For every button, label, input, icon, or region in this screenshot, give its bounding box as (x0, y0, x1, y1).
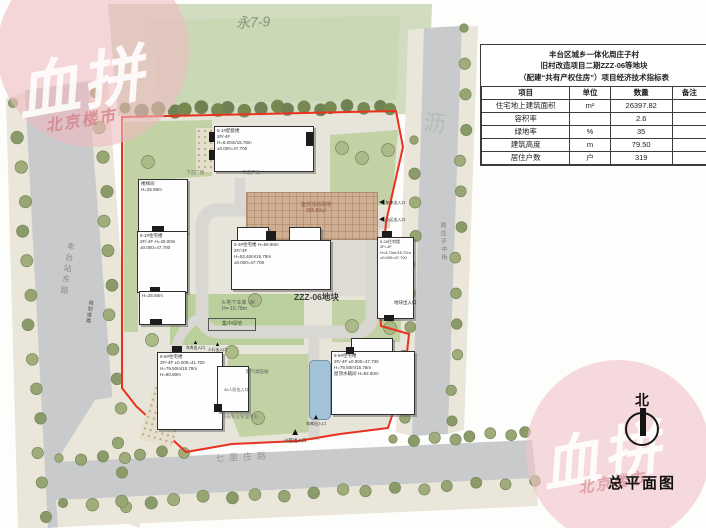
tree-icon (168, 493, 180, 505)
stair-core-block (346, 347, 354, 354)
lawn-west-strip (124, 180, 138, 332)
building-west-low: H=25.60m (139, 291, 186, 325)
tree-icon (471, 477, 482, 488)
table-cell: % (570, 125, 610, 138)
table-cell: 319 (610, 151, 672, 164)
north-label: 北 (602, 390, 682, 410)
north-arrow: 北 总平面图 (602, 390, 682, 493)
tree-icon (55, 454, 64, 463)
table-cell (672, 99, 706, 112)
tree-icon (195, 101, 208, 114)
tree-icon (93, 121, 106, 134)
tree-icon (337, 484, 349, 496)
building-6-1-annex: 6-1#配套楼 2F/-4F H=8.00m/15.78m ±0.000=47.… (214, 126, 314, 172)
table-cell (672, 138, 706, 151)
tree-icon (464, 431, 475, 442)
table-title-line: 旧村改造项目二期ZZZ-06等地块 (483, 60, 705, 71)
tree-icon (22, 319, 34, 331)
tree-icon (451, 288, 462, 299)
parcel-code-label: ZZZ-06地块 (294, 292, 339, 303)
tree-icon (356, 152, 369, 165)
table-cell (672, 125, 706, 138)
stair-core-block (150, 319, 162, 325)
building-5-3-residential: 5-3#住宅楼 H=58.90m 2F/-4F H=53.40m/15.78m … (231, 240, 331, 290)
tree-icon (456, 222, 467, 233)
stair-core-block (306, 132, 313, 146)
table-cell: 35 (610, 125, 672, 138)
tree-icon (40, 511, 51, 522)
tree-icon (520, 427, 531, 438)
tree-icon (450, 252, 461, 263)
stair-core-block (382, 231, 392, 237)
tree-icon (90, 88, 99, 97)
tree-icon (298, 101, 310, 113)
entrance-label: 车库出入口 (385, 200, 405, 206)
site-plan-page: 室外活动场地 255.50㎡ 6-1#配套楼 2F/-4F H=8.00m/15… (0, 0, 706, 528)
tree-icon (459, 58, 470, 69)
tree-icon (221, 101, 234, 114)
tree-icon (530, 476, 541, 487)
table-header-cell: 单位 (570, 86, 610, 99)
tree-icon (226, 492, 238, 504)
park-plot-label: 永7-9 (236, 13, 271, 32)
tree-icon (102, 245, 114, 257)
civil-defense-label: 3#人防出入口 (224, 387, 248, 392)
table-cell: m² (570, 99, 610, 112)
tree-icon (98, 215, 110, 227)
entrance-arrow-icon: ▲ (290, 428, 300, 438)
table-header-cell: 项目 (482, 86, 570, 99)
tree-icon (178, 103, 191, 116)
indicator-grid: 项目 单位 数量 备注 住宅地上建筑面积m²26397.82容积率2.6绿地率%… (481, 86, 706, 165)
tree-icon (409, 168, 420, 179)
activity-area-label: 室外活动场地 255.50㎡ (288, 202, 344, 215)
underground-garage-label: 6-地下车库 -3F H=-15.78m (222, 300, 255, 313)
tree-icon (116, 467, 127, 478)
stair-core-block (209, 150, 215, 160)
tree-icon (341, 100, 353, 112)
tree-icon (460, 24, 469, 33)
table-cell (672, 151, 706, 164)
tree-icon (157, 446, 168, 457)
tree-icon (146, 334, 159, 347)
tree-icon (11, 131, 24, 144)
tree-icon (450, 434, 461, 445)
entrance-label: 人行出入口 (208, 348, 227, 353)
tree-icon (451, 319, 462, 330)
tree-icon (408, 435, 419, 446)
stair-core-block (266, 231, 276, 241)
tree-icon (120, 103, 130, 113)
tree-icon (119, 452, 130, 463)
table-header-cell: 数量 (610, 86, 672, 99)
tree-icon (346, 320, 359, 333)
tree-icon (17, 225, 29, 237)
tree-icon (116, 495, 128, 507)
table-cell: 2.6 (610, 112, 672, 125)
table-header-row: 项目 单位 数量 备注 (482, 86, 706, 99)
tree-icon (454, 155, 465, 166)
water-pool (309, 360, 331, 420)
entrance-label: 小区出入口 (385, 217, 405, 223)
tree-icon (197, 490, 209, 502)
tree-icon (19, 195, 31, 207)
tree-icon (278, 490, 290, 502)
tree-icon (25, 289, 37, 301)
tree-icon (142, 156, 155, 169)
entrance-arrow-icon: ◀ (379, 199, 384, 206)
tree-icon (36, 477, 47, 488)
tree-icon (409, 197, 420, 208)
property-room-label: 四层物业管理用房 (222, 414, 258, 420)
tree-icon (441, 481, 452, 492)
north-arrow-circle (625, 412, 659, 446)
tree-icon (35, 413, 47, 425)
tree-icon (101, 185, 113, 197)
table-row: 绿地率%35 (482, 125, 706, 138)
tree-icon (419, 484, 430, 495)
table-row: 居住户数户319 (482, 151, 706, 164)
stair-core-block (152, 226, 164, 232)
tree-icon (405, 322, 416, 333)
east-road-name: 周庄子中街 (437, 222, 446, 262)
table-row: 住宅地上建筑面积m²26397.82 (482, 99, 706, 112)
tree-icon (86, 498, 99, 511)
tree-icon (429, 432, 440, 443)
building-5-1-residential: 5-1#住宅楼 2F/-4F H=40.00m ±0.000=47.700 (137, 231, 188, 293)
sunken-plaza-label: 下沉广场 (242, 170, 260, 176)
drawing-caption: 总平面图 (602, 472, 682, 493)
tree-icon (107, 343, 119, 355)
stair-core-block (209, 132, 215, 142)
tree-icon (249, 489, 261, 501)
tree-icon (26, 353, 38, 365)
tree-icon (97, 151, 109, 163)
table-cell (570, 112, 610, 125)
building-west-stair: 楼梯间 H=25.90m (138, 179, 188, 233)
tree-icon (336, 142, 349, 155)
central-green-label: 集中绿地 (208, 318, 256, 331)
table-cell (672, 112, 706, 125)
table-row: 建筑高度m79.50 (482, 138, 706, 151)
plot-entrance-label: 地块出入口 (394, 300, 417, 306)
tree-icon (389, 435, 398, 444)
table-cell: 26397.82 (610, 99, 672, 112)
tree-icon (461, 124, 472, 135)
indicator-table: 丰台区城乡一体化周庄子村 旧村改造项目二期ZZZ-06等地块 （配建“共有产权住… (480, 44, 706, 166)
table-cell: 79.50 (610, 138, 672, 151)
tree-icon (58, 498, 67, 507)
stair-core-block (172, 346, 182, 352)
table-cell: 建筑高度 (482, 138, 570, 151)
tree-icon (21, 255, 33, 267)
entrance-label: 车库出入口 (186, 346, 205, 351)
community-entrance-marker: ◀ 小区出入口 (379, 216, 405, 223)
building-5-6-residential: 5-6#住宅楼 2F/-4F ±0.000=41.700 H=79.50m/15… (157, 352, 223, 430)
park-area-inner (150, 16, 400, 104)
stair-core-block (150, 287, 160, 292)
tree-icon (360, 485, 371, 496)
tree-icon (485, 428, 496, 439)
table-title: 丰台区城乡一体化周庄子村 旧村改造项目二期ZZZ-06等地块 （配建“共有产权住… (481, 45, 706, 86)
entrance-arrow-icon: ▲ (313, 414, 320, 421)
table-title-line: （配建“共有产权住房”）项目经济技术指标表 (483, 72, 705, 83)
table-cell: 住宅地上建筑面积 (482, 99, 570, 112)
tree-icon (115, 403, 127, 415)
sunken-plaza-label: 下沉广场 (186, 170, 204, 176)
tree-icon (134, 449, 145, 460)
table-cell: 容积率 (482, 112, 570, 125)
tree-icon (75, 454, 86, 465)
garage-entrance-marker: ▲ 车库出入口 (306, 414, 326, 427)
table-cell: 户 (570, 151, 610, 164)
tree-icon (384, 103, 396, 115)
tree-icon (32, 447, 43, 458)
gas-station-label: 燃气调压站 (246, 369, 269, 375)
tree-icon (460, 89, 471, 100)
tree-icon (152, 102, 166, 116)
stair-core-block (384, 315, 394, 321)
entrance-label: 小区出入口 (284, 438, 307, 444)
table-title-line: 丰台区城乡一体化周庄子村 (483, 49, 705, 60)
tree-icon (452, 349, 463, 360)
tree-icon (506, 430, 517, 441)
tree-icon (103, 309, 115, 321)
tree-icon (389, 482, 400, 493)
building-5-5-residential: 5-5#住宅楼 2F/-4F ±0.000=47.700 H=79.50m/15… (331, 351, 415, 415)
tree-icon (106, 279, 118, 291)
garage-entrance-marker: ▲ 车库出入口 (186, 340, 205, 351)
stair-core-block (214, 404, 222, 412)
building-5-2-residential: 5-2#住宅楼 2F/-4F H=8.70m/15.70m ±0.000=47.… (377, 237, 414, 319)
tree-icon (145, 497, 157, 509)
tree-icon (15, 161, 27, 173)
faint-map-character: 沥 (423, 109, 448, 139)
tree-icon (308, 487, 320, 499)
tree-icon (447, 416, 457, 426)
entrance-label: 车库出入口 (306, 421, 326, 427)
tree-icon (410, 136, 419, 145)
table-cell: m (570, 138, 610, 151)
table-header-cell: 备注 (672, 86, 706, 99)
community-main-entrance-marker: ▲ 小区出入口 (284, 428, 307, 444)
tree-icon (8, 98, 17, 107)
table-row: 容积率2.6 (482, 112, 706, 125)
tree-icon (500, 479, 511, 490)
entrance-arrow-icon: ◀ (379, 216, 384, 223)
table-cell: 居住户数 (482, 151, 570, 164)
tree-icon (455, 186, 466, 197)
tree-icon (382, 144, 395, 157)
tree-icon (112, 437, 123, 448)
table-cell: 绿地率 (482, 125, 570, 138)
pedestrian-entrance-marker: ▲ 人行出入口 (208, 342, 227, 353)
tree-icon (31, 383, 43, 395)
garage-entrance-marker: ◀ 车库出入口 (379, 199, 405, 206)
tree-icon (226, 346, 239, 359)
tree-icon (446, 385, 456, 395)
indicator-table-body: 住宅地上建筑面积m²26397.82容积率2.6绿地率%35建筑高度m79.50… (482, 99, 706, 164)
north-arrow-needle (640, 408, 646, 436)
tree-icon (97, 451, 108, 462)
